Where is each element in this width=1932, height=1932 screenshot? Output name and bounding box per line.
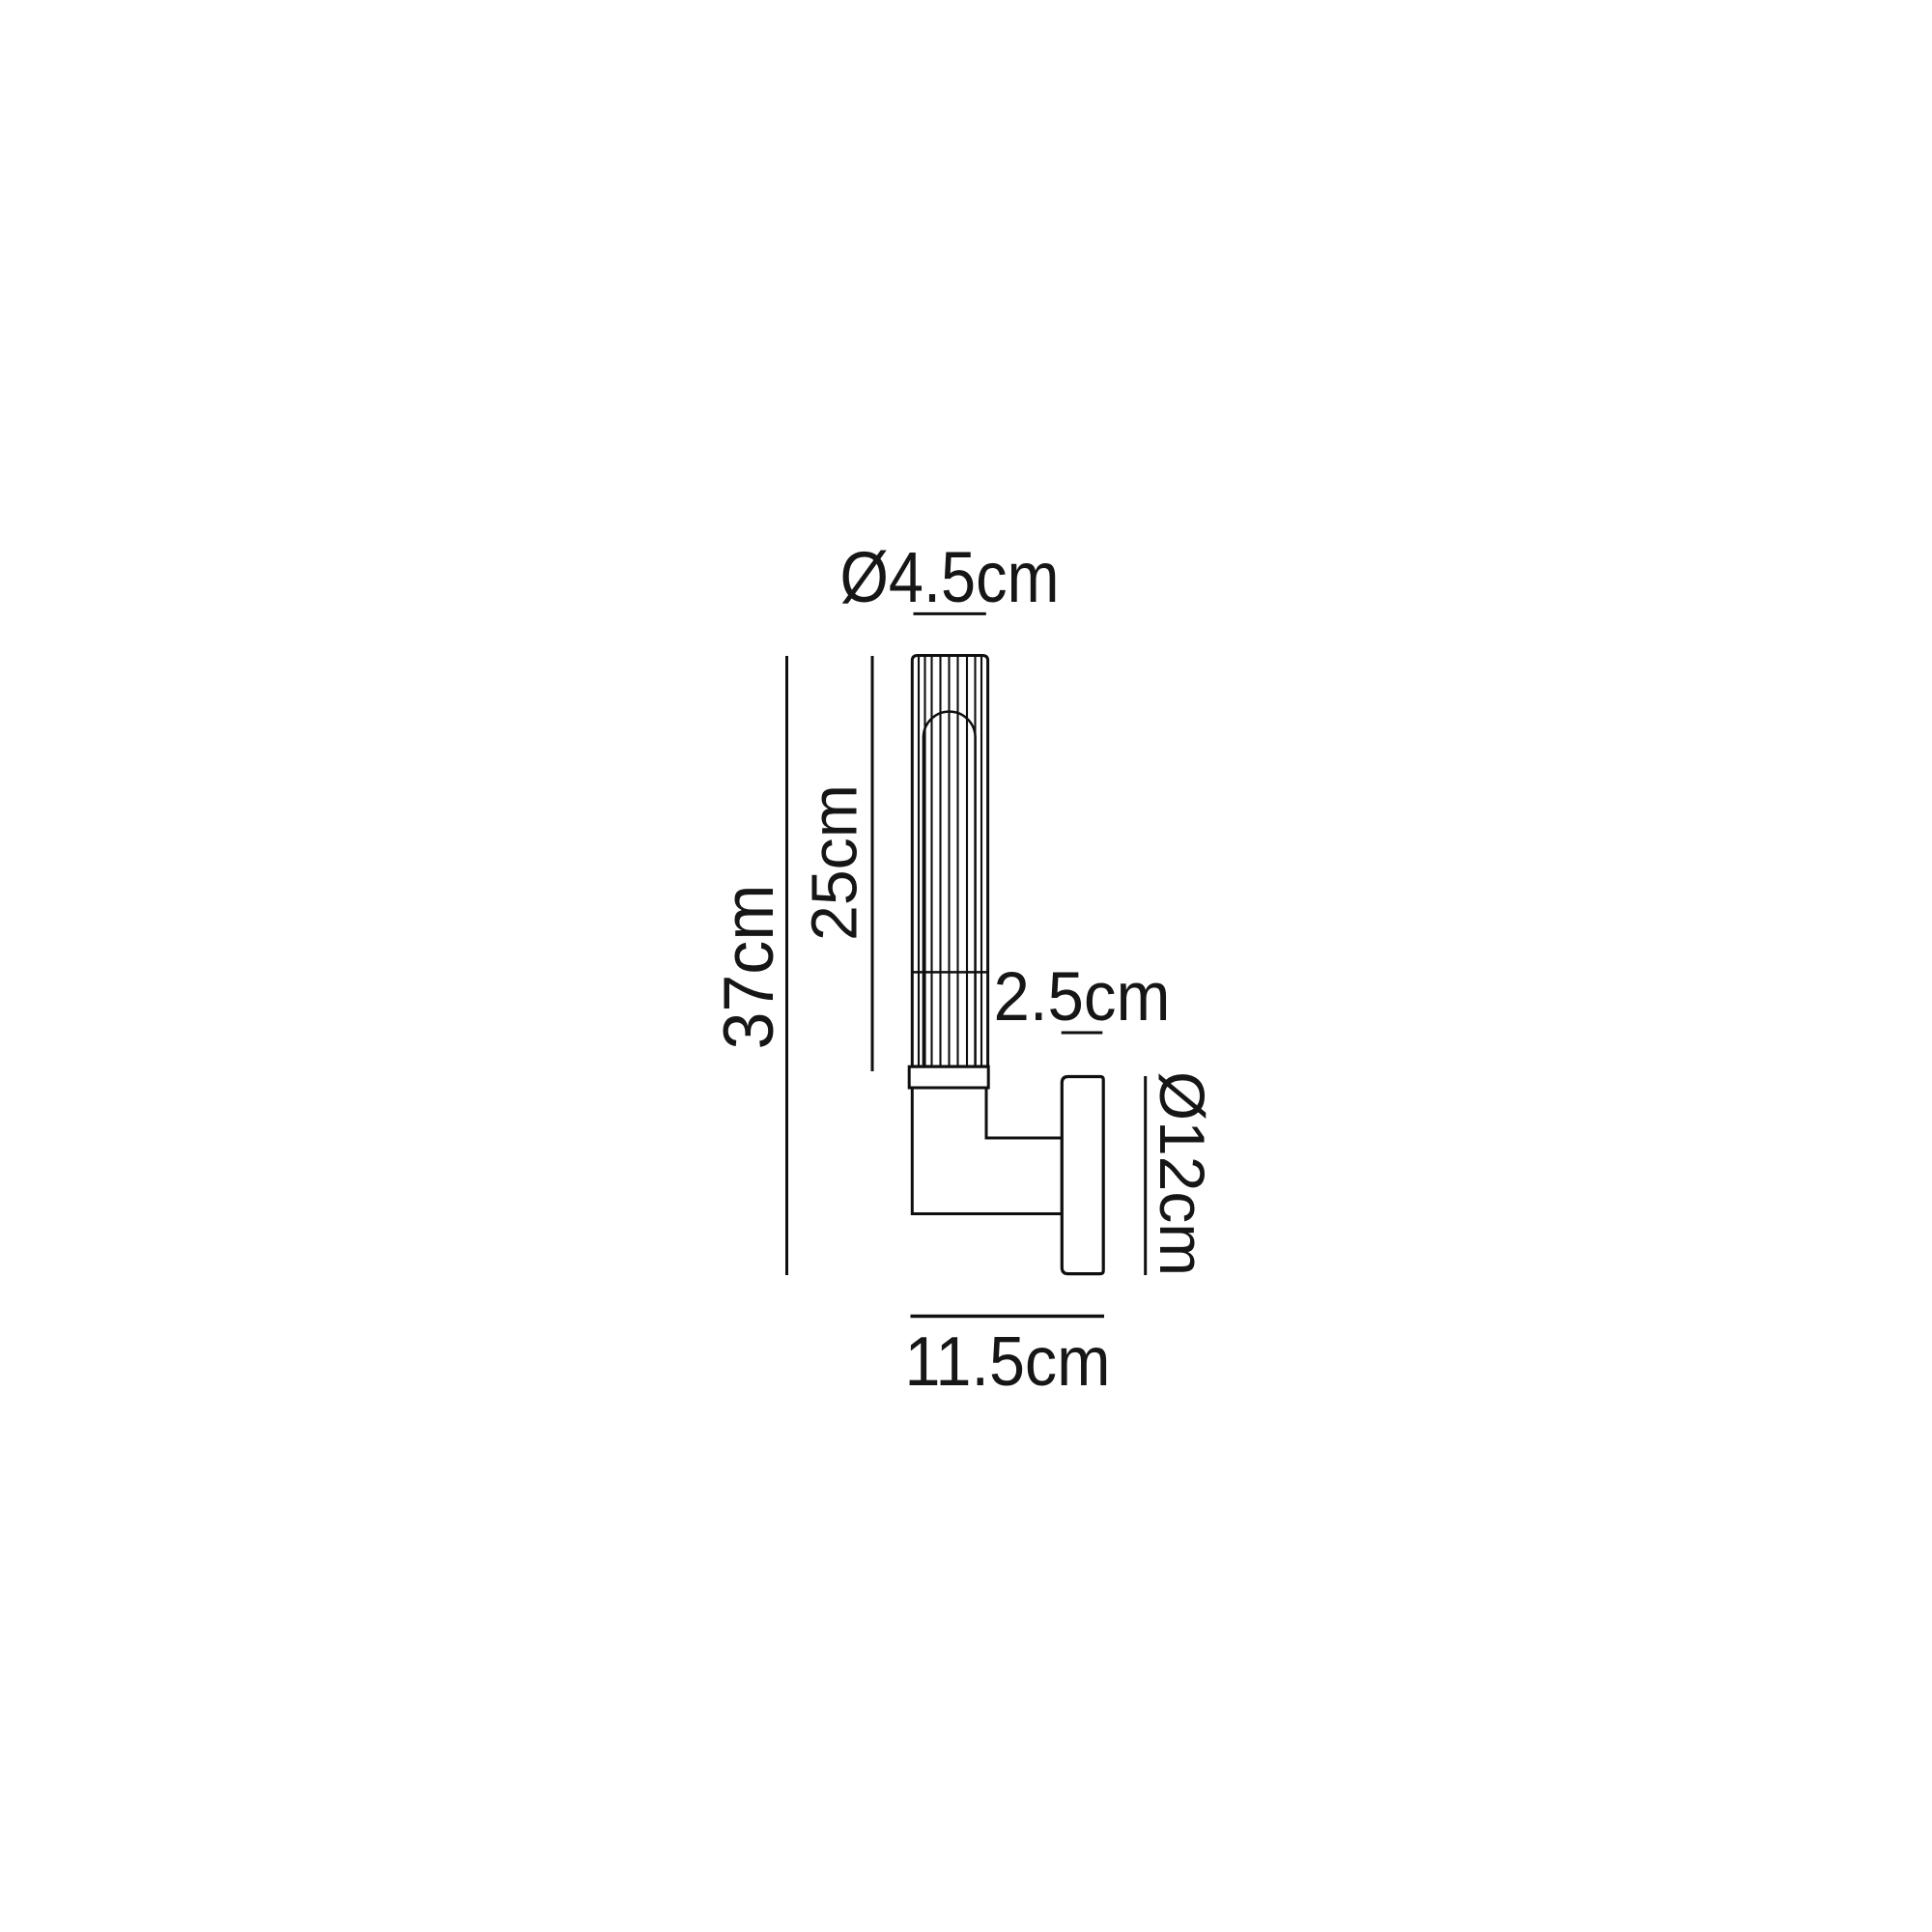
svg-text:37cm: 37cm (710, 885, 788, 1050)
svg-text:11.5cm: 11.5cm (905, 1323, 1111, 1401)
svg-text:Ø4.5cm: Ø4.5cm (840, 537, 1060, 617)
svg-text:Ø12cm: Ø12cm (1147, 1071, 1218, 1276)
svg-text:2.5cm: 2.5cm (994, 959, 1171, 1036)
svg-text:25cm: 25cm (799, 784, 871, 941)
